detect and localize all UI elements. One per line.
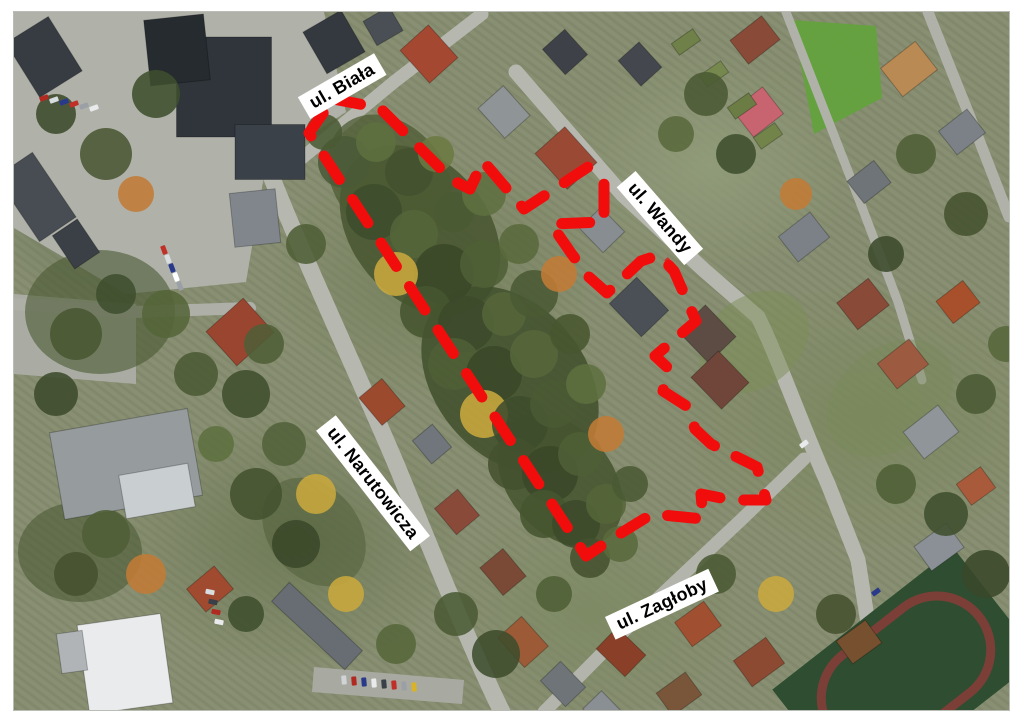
site-boundary-overlay bbox=[14, 12, 1009, 710]
page: ul. Biała ul. Wandy ul. Narutowicza ul. … bbox=[0, 0, 1024, 724]
aerial-photo: ul. Biała ul. Wandy ul. Narutowicza ul. … bbox=[14, 12, 1009, 710]
